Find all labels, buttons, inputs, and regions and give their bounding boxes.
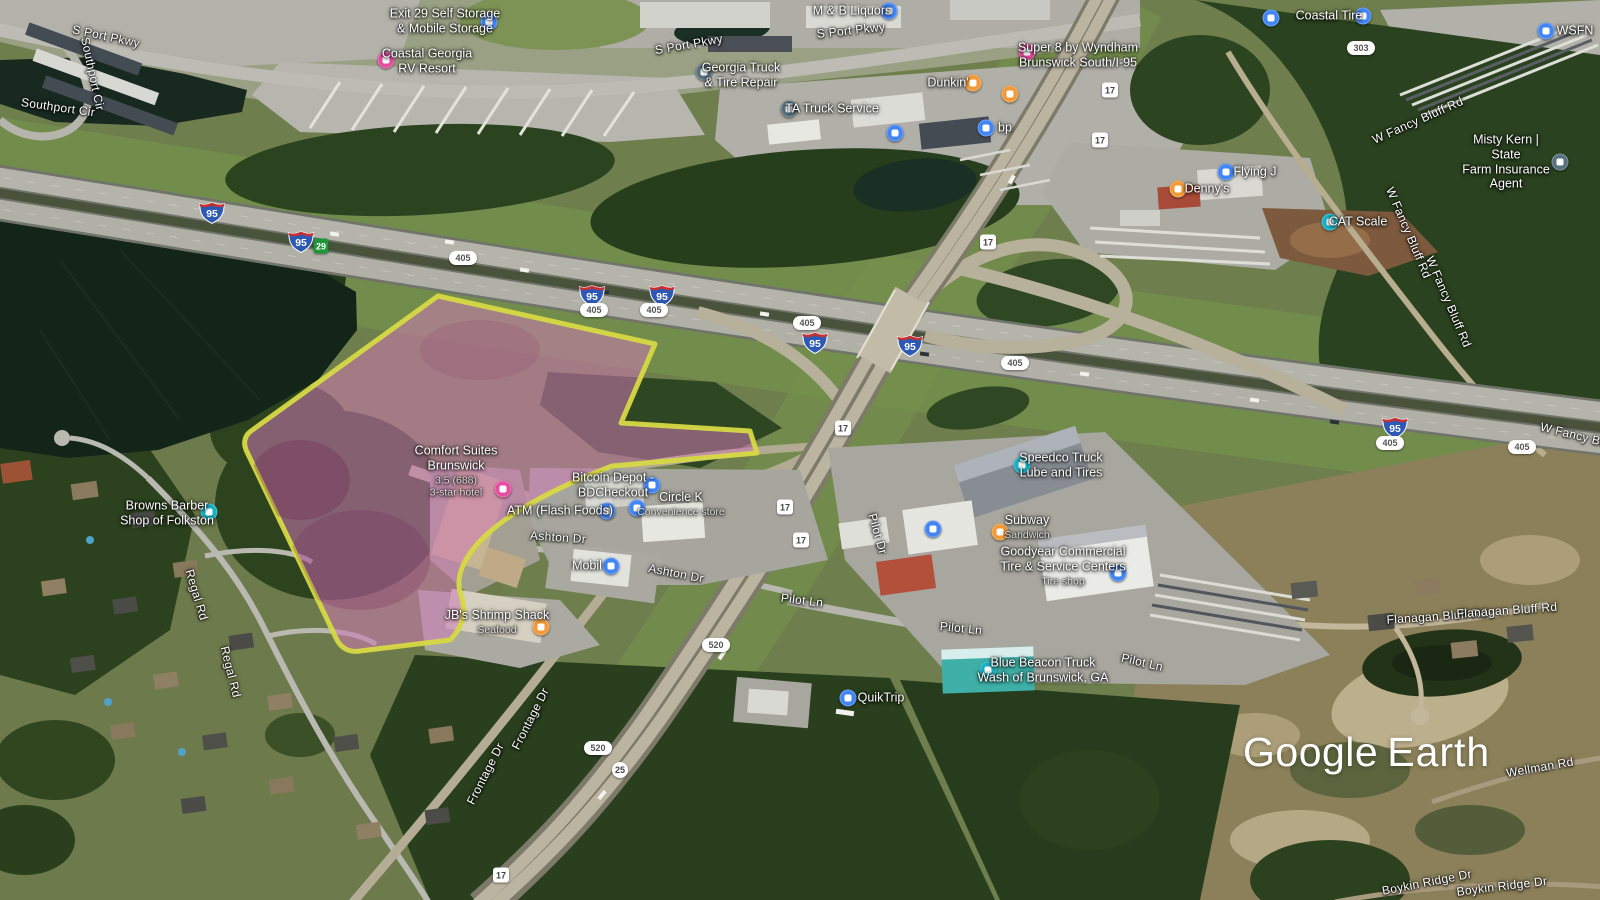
road-label: W Fancy Bluff Rd bbox=[1371, 95, 1466, 147]
misty-kern-state-farm-label[interactable]: Misty Kern | State Farm Insurance Agent bbox=[1459, 133, 1553, 192]
poi-glyph bbox=[997, 529, 1004, 536]
poi-glyph bbox=[500, 486, 507, 493]
super-8-by-wyndham-label[interactable]: Super 8 by Wyndham Brunswick South/I-95 bbox=[1018, 40, 1138, 70]
jbs-shrimp-shack-label[interactable]: JB's Shrimp ShackSeafood bbox=[445, 608, 550, 636]
bp-icon[interactable] bbox=[978, 120, 995, 137]
subway-label[interactable]: SubwaySandwich bbox=[1004, 513, 1050, 541]
poi-glyph bbox=[1557, 159, 1564, 166]
route-shield-interstate-95: 95 bbox=[199, 200, 226, 225]
road-label: Regal Rd bbox=[182, 568, 210, 622]
route-shield-oval-520: 520 bbox=[584, 741, 612, 755]
poi-glyph bbox=[1543, 28, 1550, 35]
road-label: Pilot Ln bbox=[1120, 652, 1164, 675]
road-label: Regal Rd bbox=[217, 645, 243, 699]
poi-glyph bbox=[1268, 15, 1275, 22]
poi-glyph bbox=[1175, 186, 1182, 193]
watermark-earth: Earth bbox=[1387, 729, 1490, 775]
comfort-suites-brunswick-subtitle: 3.5 (688) 3-star hotel bbox=[415, 474, 498, 498]
route-shield-oval-303: 303 bbox=[1347, 41, 1375, 55]
poi-glyph bbox=[1223, 169, 1230, 176]
parking-poi-icon[interactable] bbox=[1263, 10, 1280, 27]
route-shield-interstate-95: 95 bbox=[288, 229, 315, 254]
route-shield-oval-405: 405 bbox=[640, 303, 668, 317]
coastal-georgia-rv-resort-label[interactable]: Coastal Georgia RV Resort bbox=[382, 46, 472, 76]
route-shield-interstate-95: 95 bbox=[802, 330, 829, 355]
ta-truck-service-label[interactable]: TA Truck Service bbox=[785, 102, 879, 117]
route-shield-square-17: 17 bbox=[835, 421, 851, 436]
route-shield-square-17: 17 bbox=[777, 500, 793, 515]
coastal-tire-label[interactable]: Coastal Tire bbox=[1296, 9, 1363, 24]
goodyear-commercial-tire-label[interactable]: Goodyear Commercial Tire & Service Cente… bbox=[1000, 545, 1125, 588]
poi-glyph bbox=[930, 526, 937, 533]
quiktrip-label[interactable]: QuikTrip bbox=[858, 691, 905, 706]
route-shield-square-17: 17 bbox=[1092, 133, 1108, 148]
route-shield-square-17: 17 bbox=[1102, 83, 1118, 98]
road-label: Southport Cir bbox=[78, 36, 107, 112]
bp-label[interactable]: bp bbox=[998, 121, 1012, 136]
road-label: Wellman Rd bbox=[1505, 755, 1574, 780]
blue-beacon-truck-wash-label[interactable]: Blue Beacon Truck Wash of Brunswick, GA bbox=[978, 655, 1109, 685]
road-label: Frontage Dr bbox=[510, 686, 553, 752]
m-and-b-liquors-label[interactable]: M & B Liquors bbox=[813, 4, 892, 19]
misty-kern-state-farm-icon[interactable] bbox=[1552, 154, 1569, 171]
wsfn-icon[interactable] bbox=[1538, 23, 1555, 40]
poi-glyph bbox=[845, 695, 852, 702]
route-shield-oval-405: 405 bbox=[449, 251, 477, 265]
dunkin-label[interactable]: Dunkin' bbox=[927, 76, 968, 91]
svg-text:95: 95 bbox=[295, 238, 307, 249]
svg-text:95: 95 bbox=[656, 292, 668, 303]
route-shield-square-17: 17 bbox=[493, 868, 509, 883]
route-shield-oval-405: 405 bbox=[1508, 440, 1536, 454]
comfort-suites-brunswick-label[interactable]: Comfort Suites Brunswick3.5 (688) 3-star… bbox=[415, 444, 498, 499]
wsfn-label[interactable]: WSFN bbox=[1557, 24, 1594, 39]
restaurant-poi-icon[interactable] bbox=[1002, 86, 1019, 103]
poi-glyph bbox=[892, 130, 899, 137]
poi-glyph bbox=[608, 563, 615, 570]
road-label: Frontage Dr bbox=[465, 741, 508, 807]
poi-glyph bbox=[983, 125, 990, 132]
flying-j-icon[interactable] bbox=[1218, 164, 1235, 181]
mobil-icon[interactable] bbox=[603, 558, 620, 575]
road-label: Pilot Ln bbox=[780, 592, 824, 611]
google-earth-watermark: GoogleEarth bbox=[1243, 729, 1490, 776]
route-shield-circle-25: 25 bbox=[612, 762, 628, 778]
road-label: Flanagan Bluff Rd bbox=[1456, 601, 1558, 621]
cat-scale-label[interactable]: CAT Scale bbox=[1329, 215, 1388, 230]
poi-glyph bbox=[970, 80, 977, 87]
svg-text:95: 95 bbox=[904, 342, 916, 353]
route-shield-oval-405: 405 bbox=[580, 303, 608, 317]
fuel-poi-icon[interactable] bbox=[887, 125, 904, 142]
jbs-shrimp-shack-subtitle: Seafood bbox=[445, 624, 550, 636]
dennys-label[interactable]: Denny's bbox=[1185, 182, 1230, 197]
road-label: Pilot Dr bbox=[865, 512, 889, 556]
speedco-truck-lube-label[interactable]: Speedco Truck Lube and Tires bbox=[1019, 450, 1102, 480]
road-label: S Port Pkwy bbox=[654, 32, 724, 57]
road-label: Ashton Dr bbox=[530, 529, 587, 546]
poi-glyph bbox=[1007, 91, 1014, 98]
route-shield-square-17: 17 bbox=[980, 235, 996, 250]
exit-29-self-storage-label[interactable]: Exit 29 Self Storage & Mobile Storage bbox=[390, 6, 500, 36]
circle-k-label[interactable]: Circle KConvenience store bbox=[637, 490, 725, 518]
route-shield-oval-405: 405 bbox=[1376, 436, 1404, 450]
browns-barber-shop-label[interactable]: Browns Barber Shop of Folkston bbox=[120, 498, 214, 528]
svg-text:95: 95 bbox=[586, 292, 598, 303]
road-label: W Fancy Bluff Rd bbox=[1539, 421, 1600, 458]
svg-text:95: 95 bbox=[1389, 424, 1401, 435]
atm-flash-foods-label[interactable]: ATM (Flash Foods) bbox=[507, 504, 613, 519]
subway-subtitle: Sandwich bbox=[1004, 529, 1050, 541]
earth-canvas[interactable]: S Port PkwySouthport CirSouthport CirS P… bbox=[0, 0, 1600, 900]
road-label: Ashton Dr bbox=[647, 562, 705, 586]
fuel-poi-2-icon[interactable] bbox=[925, 521, 942, 538]
road-label: W Fancy Bluff Rd bbox=[1423, 254, 1474, 349]
route-shield-oval-405: 405 bbox=[793, 316, 821, 330]
circle-k-subtitle: Convenience store bbox=[637, 506, 725, 518]
route-shield-exit-29: 29 bbox=[314, 239, 329, 254]
svg-text:95: 95 bbox=[809, 339, 821, 350]
mobil-label[interactable]: Mobil bbox=[572, 559, 602, 574]
route-shield-oval-405: 405 bbox=[1001, 356, 1029, 370]
route-shield-square-17: 17 bbox=[793, 533, 809, 548]
road-label: Pilot Ln bbox=[939, 620, 983, 638]
road-label: S Port Pkwy bbox=[816, 21, 886, 42]
svg-text:95: 95 bbox=[206, 209, 218, 220]
route-shield-oval-520: 520 bbox=[702, 638, 730, 652]
route-shield-interstate-95: 95 bbox=[897, 333, 924, 358]
goodyear-commercial-tire-subtitle: Tire shop bbox=[1000, 575, 1125, 587]
quiktrip-icon[interactable] bbox=[840, 690, 857, 707]
watermark-google: Google bbox=[1243, 729, 1378, 775]
georgia-truck-and-tire-repair-label[interactable]: Georgia Truck & Tire Repair bbox=[702, 60, 781, 90]
flying-j-label[interactable]: Flying J bbox=[1233, 165, 1276, 180]
road-label: Southport Cir bbox=[20, 96, 96, 120]
